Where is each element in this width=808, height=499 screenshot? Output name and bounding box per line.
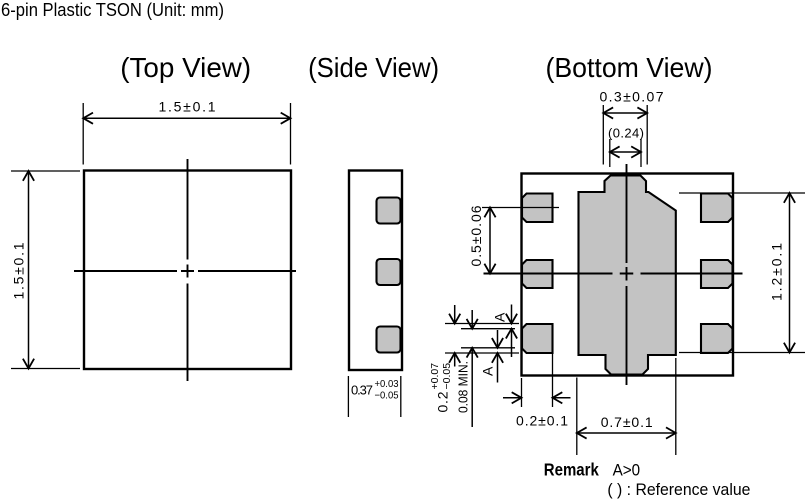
svg-text:Remark: Remark xyxy=(544,460,599,480)
svg-text:0.3±0.07: 0.3±0.07 xyxy=(600,89,664,105)
svg-text:−0.05: −0.05 xyxy=(375,390,399,402)
svg-text:0.7±0.1: 0.7±0.1 xyxy=(601,414,653,430)
svg-text:0.37: 0.37 xyxy=(351,383,373,398)
svg-text:0.2: 0.2 xyxy=(435,391,451,412)
svg-text:0.5±0.06: 0.5±0.06 xyxy=(468,205,484,266)
svg-text:6-pin Plastic TSON (Unit: mm): 6-pin Plastic TSON (Unit: mm) xyxy=(1,0,224,20)
svg-text:A>0: A>0 xyxy=(613,461,641,480)
svg-text:1.5±0.1: 1.5±0.1 xyxy=(159,99,216,115)
svg-text:1.5±0.1: 1.5±0.1 xyxy=(11,242,27,299)
svg-text:A: A xyxy=(480,366,496,376)
svg-text:(0.24): (0.24) xyxy=(608,126,644,141)
svg-text:(Top View): (Top View) xyxy=(120,52,251,83)
svg-text:( ) : Reference value: ( ) : Reference value xyxy=(607,481,750,499)
svg-text:+0.03: +0.03 xyxy=(375,378,399,390)
svg-text:−0.05: −0.05 xyxy=(441,363,453,390)
svg-text:1.2±0.1: 1.2±0.1 xyxy=(769,243,785,301)
svg-text:+0.07: +0.07 xyxy=(429,363,441,390)
svg-text:A: A xyxy=(492,312,508,322)
svg-text:(Side View): (Side View) xyxy=(308,52,439,83)
svg-text:0.08 MIN.: 0.08 MIN. xyxy=(456,361,471,413)
svg-text:0.2±0.1: 0.2±0.1 xyxy=(516,413,568,429)
svg-text:(Bottom View): (Bottom View) xyxy=(546,52,713,83)
